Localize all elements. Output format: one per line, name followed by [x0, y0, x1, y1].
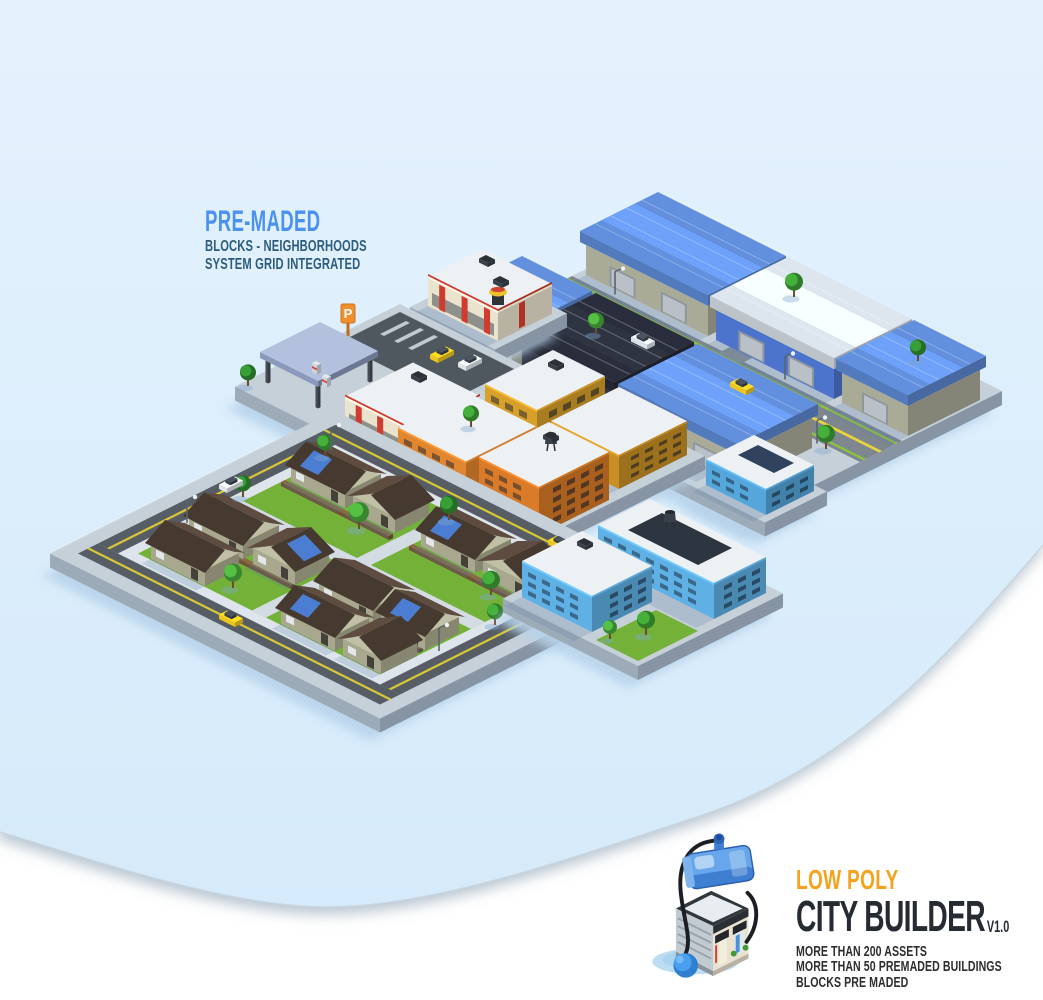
- promo-subline-1: BLOCKS - NEIGHBORHOODS: [205, 238, 367, 256]
- feature-line: MORE THAN 200 ASSETS: [796, 945, 1039, 961]
- brand-title-row: CITY BUILDER V1.0: [796, 896, 1009, 938]
- promo-subline-2: SYSTEM GRID INTEGRATED: [205, 256, 367, 274]
- promo-headline: PRE-MADED: [205, 207, 348, 238]
- pump: [322, 374, 331, 388]
- brand-text: LOW POLY CITY BUILDER V1.0 MORE THAN 200…: [796, 866, 1043, 991]
- logo-blue-ball: [673, 953, 698, 978]
- promo-text-block: PRE-MADED BLOCKS - NEIGHBORHOODS SYSTEM …: [205, 207, 436, 273]
- pump: [312, 361, 321, 375]
- city-builder-logo-icon: [648, 832, 796, 984]
- brand-features: MORE THAN 200 ASSETS MORE THAN 50 PREMAD…: [796, 945, 1043, 992]
- feature-line: MORE THAN 50 PREMADED BUILDINGS: [796, 960, 1039, 976]
- svg-text:P: P: [344, 306, 353, 321]
- poster-canvas: P PRE-MADED BLOCKS - NEIGHBORHOODS SYSTE…: [0, 0, 1043, 1000]
- feature-line: BLOCKS PRE MADED: [796, 976, 1039, 992]
- brand-title: CITY BUILDER: [796, 896, 985, 938]
- brand-tagline: LOW POLY: [796, 866, 1023, 894]
- city-scene-illustration: P: [0, 0, 1043, 1000]
- brand-version: V1.0: [987, 918, 1009, 935]
